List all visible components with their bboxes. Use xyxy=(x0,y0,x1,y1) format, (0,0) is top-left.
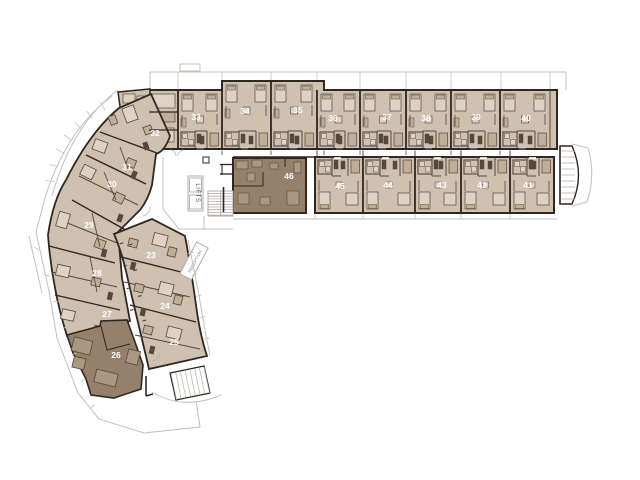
svg-text:42: 42 xyxy=(477,180,487,190)
svg-text:30: 30 xyxy=(107,179,117,189)
svg-text:35: 35 xyxy=(293,105,303,115)
svg-text:44: 44 xyxy=(383,180,393,190)
svg-text:33: 33 xyxy=(191,112,201,122)
svg-text:29: 29 xyxy=(84,220,94,230)
svg-text:27: 27 xyxy=(102,309,112,319)
svg-text:45: 45 xyxy=(335,181,345,191)
svg-text:25: 25 xyxy=(169,337,179,347)
svg-text:41: 41 xyxy=(523,180,533,190)
svg-text:40: 40 xyxy=(521,113,531,123)
svg-text:26: 26 xyxy=(111,350,121,360)
svg-text:32: 32 xyxy=(150,128,160,138)
svg-text:24: 24 xyxy=(160,301,170,311)
svg-text:43: 43 xyxy=(437,180,447,190)
svg-text:37: 37 xyxy=(382,112,392,122)
svg-text:46: 46 xyxy=(284,171,294,181)
svg-text:38: 38 xyxy=(421,113,431,123)
svg-text:34: 34 xyxy=(240,106,250,116)
svg-text:31: 31 xyxy=(122,162,132,172)
svg-text:36: 36 xyxy=(328,113,338,123)
svg-text:39: 39 xyxy=(471,112,481,122)
svg-text:28: 28 xyxy=(92,268,102,278)
svg-text:LIFTS: LIFTS xyxy=(194,183,200,202)
svg-text:23: 23 xyxy=(146,250,156,260)
